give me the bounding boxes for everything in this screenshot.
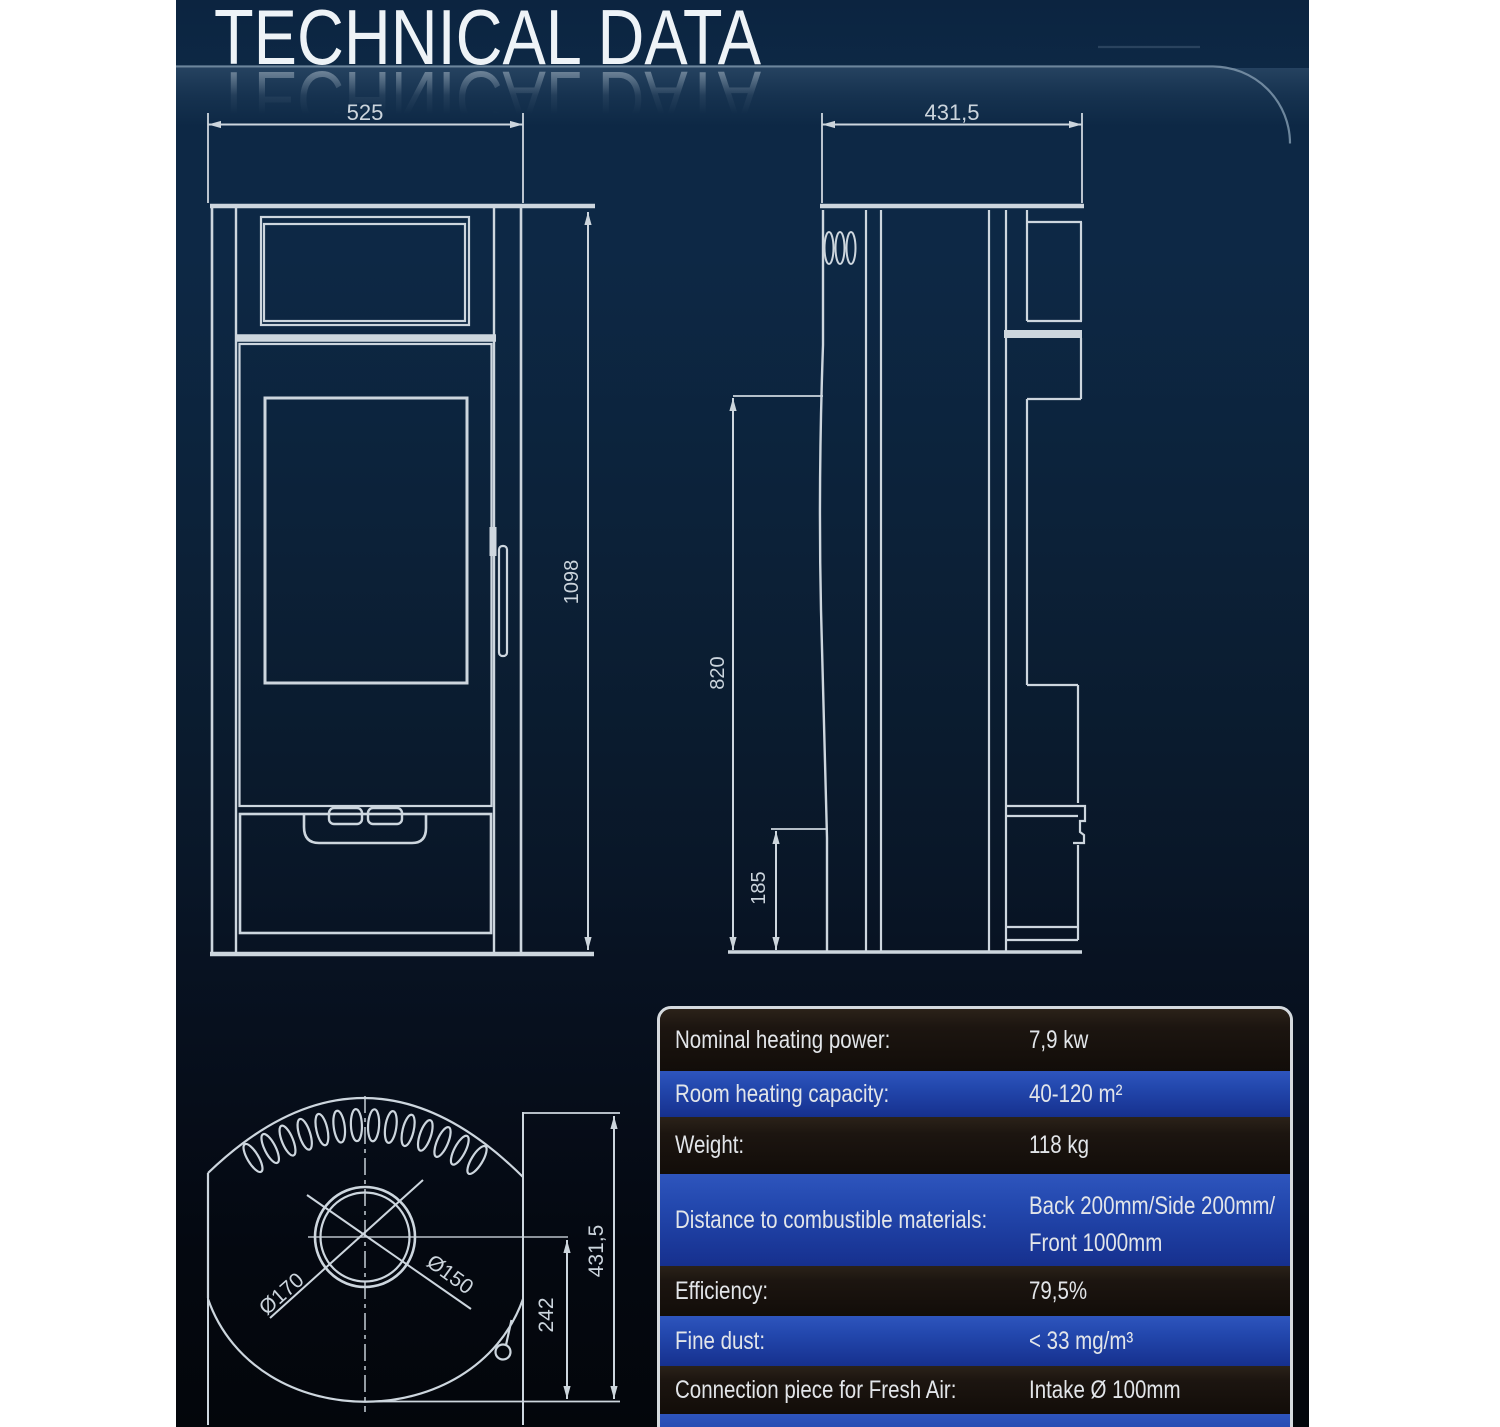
svg-text:431,5: 431,5 <box>585 1225 608 1278</box>
svg-text:525: 525 <box>347 100 384 125</box>
svg-text:242: 242 <box>535 1297 558 1332</box>
svg-text:820: 820 <box>707 656 729 689</box>
svg-text:TECHNICAL DATA: TECHNICAL DATA <box>214 55 761 143</box>
svg-text:Ø150: Ø150 <box>422 1250 477 1299</box>
svg-text:185: 185 <box>748 871 770 904</box>
svg-text:1098: 1098 <box>561 560 583 605</box>
svg-text:431,5: 431,5 <box>924 100 979 125</box>
svg-text:Ø170: Ø170 <box>255 1268 309 1319</box>
